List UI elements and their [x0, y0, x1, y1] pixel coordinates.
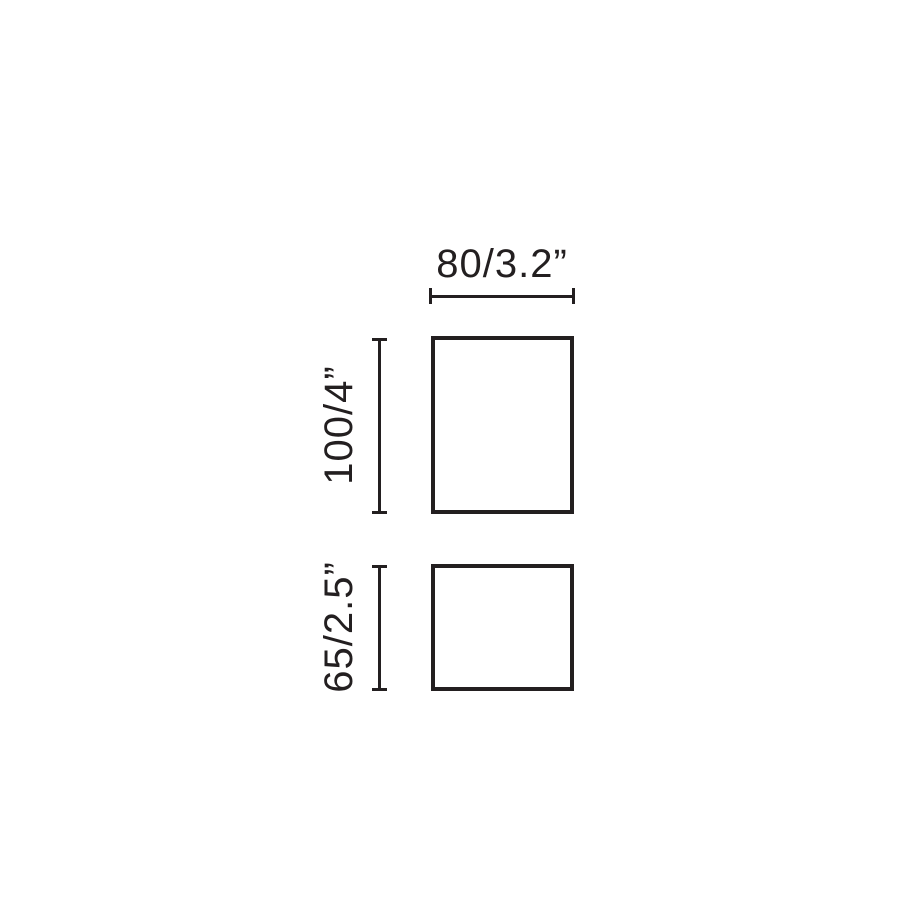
fixture-front-view-outline: [431, 336, 574, 514]
height-dimension-label-top: 100/4”: [319, 365, 359, 484]
fixture-side-view-outline: [431, 564, 574, 691]
height-dimension-line-top: [372, 338, 387, 514]
height-dimension-bar-top: [378, 341, 381, 511]
height-dimension-bar-bottom: [378, 568, 381, 688]
height-dimension-line-bottom: [372, 565, 387, 691]
width-dimension-label: 80/3.2”: [436, 244, 568, 284]
width-dimension-bar: [432, 295, 572, 298]
dimension-diagram: 80/3.2” 100/4” 65/2.5”: [0, 0, 900, 900]
width-dimension-line: [429, 288, 575, 304]
height-dimension-label-bottom: 65/2.5”: [319, 561, 359, 693]
